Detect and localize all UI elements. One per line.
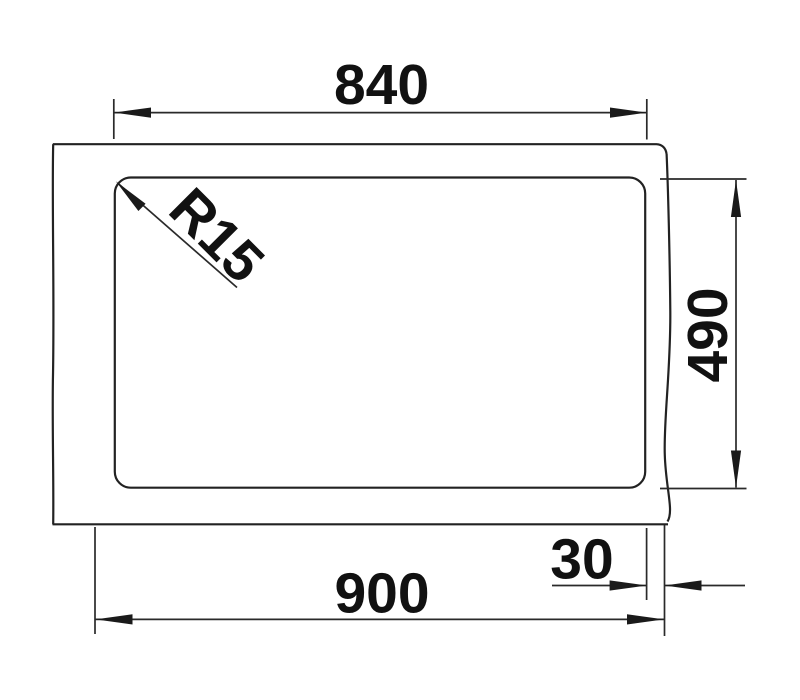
svg-text:900: 900 xyxy=(334,562,429,626)
svg-text:30: 30 xyxy=(550,528,613,592)
svg-text:490: 490 xyxy=(676,287,740,382)
svg-text:840: 840 xyxy=(334,53,429,117)
